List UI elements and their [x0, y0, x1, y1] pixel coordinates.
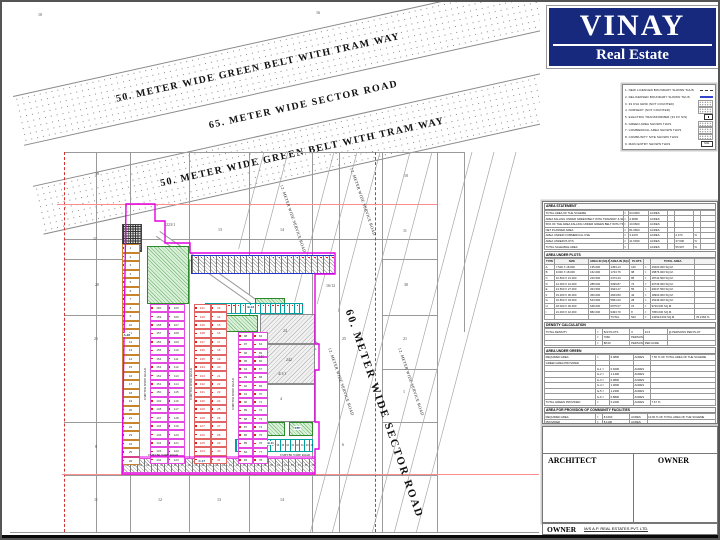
plot-cell: 137 [194, 338, 211, 346]
plot-cell: 154 [150, 355, 168, 363]
title-block-vertical-divider [633, 453, 634, 524]
strip-plot-cell: 44 [226, 459, 233, 472]
table-cell: TOTAL SALEABLE AREA [545, 244, 624, 250]
plot-cell: 97 [238, 340, 253, 348]
table-cell [647, 420, 715, 424]
plot-cell: 8 [122, 304, 140, 313]
inner-road-label: 9 METER WIDE ROAD [231, 374, 235, 414]
legend-symbol-blue-icon [700, 96, 713, 98]
strip-plot-cell [299, 304, 304, 313]
plot-cell: 75 [253, 431, 268, 439]
legend-item: 8. COMMUNITY SITE SHOWN THUS [625, 134, 713, 141]
table-cell: PER ACRE [644, 340, 668, 346]
table-cell: 8.1100 [603, 420, 630, 424]
plot-cell: 155 [150, 346, 168, 354]
service-road-line [239, 152, 264, 249]
block-label: A-28 [123, 333, 131, 337]
plot-cell: 23 [122, 431, 140, 440]
legend-box: 1. NEW LICENCED BOUNDARY SHOWN THUS2. DE… [622, 84, 716, 150]
data-table: TYPESIZEAREA IN (SQ.M.)AREA IN (SQ.FT.)P… [544, 258, 716, 321]
plot-cell: 5 [122, 278, 140, 287]
inner-road-label: 9 METER WIDE ROAD [143, 364, 147, 404]
plot-cell: 3 [122, 261, 140, 270]
table-cell: 6.2200 [609, 399, 633, 405]
table-cell: ACRES [633, 399, 650, 405]
table-row: TOTAL GREEN PROVIDED=6.2200ACRES7.67 % [545, 399, 716, 405]
sheet-bottom-bar [2, 535, 720, 539]
plot-cell: 158 [150, 321, 168, 329]
plot-cell: 20 [122, 406, 140, 415]
table-cell: 523 [630, 314, 644, 320]
plot-cell: 117 [168, 405, 186, 413]
legend-item-label: 3. 33 KVA GRID (NOT COUNTED) [625, 102, 697, 106]
legend-item: 4. NURSERY (NOT COUNTED) [625, 107, 713, 114]
table-cell [589, 314, 610, 320]
khasra-number: 10 [38, 12, 42, 17]
plot-cell: 136 [194, 346, 211, 354]
legend-item: 5. ELECTRIC TRANSFORMER (33 KV S/S) [625, 114, 713, 121]
plot-cell: 125 [194, 439, 211, 447]
plot-cell: 29 [211, 439, 228, 447]
plot-cell: 124 [194, 447, 211, 455]
plot-strip-0 [191, 255, 334, 274]
table-row: TOTAL SALEABLE AREA=ACRES55.907% [545, 244, 716, 250]
plot-cell: 25 [211, 405, 228, 413]
table-title: DENSITY CALCULATION [544, 322, 716, 329]
table-cell: PROVIDED [545, 420, 596, 424]
table-cell: % [693, 244, 700, 250]
company-logo: VINAY Real Estate [547, 6, 718, 68]
plot-cell: 16 [122, 372, 140, 381]
plot-cell: 26 [211, 413, 228, 421]
plot-cell: 92 [238, 382, 253, 390]
strip-plot-cell: 50 [268, 459, 275, 472]
strip-plot-cell: 56 [309, 459, 316, 472]
plot-cell: 159 [150, 312, 168, 320]
table-title: AREA UNDER PLOTS [544, 251, 716, 258]
khasra-number: 4 [280, 396, 282, 401]
table-cell: = [596, 340, 603, 346]
table-cell: ACRES [649, 244, 668, 250]
plot-cell: 126 [194, 430, 211, 438]
plot-cell: 113 [168, 371, 186, 379]
table-cell [700, 244, 715, 250]
strip-plot-cell: 29 [309, 440, 314, 451]
plot-cell: 127 [194, 422, 211, 430]
plot-cell: 106 [168, 312, 186, 320]
plot-cell: 19 [211, 355, 228, 363]
plot-cell: 17 [122, 380, 140, 389]
table-row: TOTAL523=142524.000 SQ.M.35.2184 % [545, 314, 716, 320]
plot-cell: 160 [150, 304, 168, 312]
legend-symbol-dots-icon [698, 127, 713, 134]
plot-cell: 147 [150, 413, 168, 421]
khasra-number: 14 [280, 227, 284, 232]
plot-cell: 145 [150, 430, 168, 438]
khasra-number: 4/1/1 [278, 371, 286, 376]
plot-cell: 144 [150, 439, 168, 447]
legend-item: 2. DELICENSED BOUNDARY SHOWN THUS [625, 94, 713, 101]
plot-cell: 78 [253, 456, 268, 464]
block-label: STP [294, 426, 301, 430]
legend-item-label: 4. NURSERY (NOT COUNTED) [625, 108, 697, 112]
plot-cell: 18 [211, 346, 228, 354]
legend-item-label: 5. ELECTRIC TRANSFORMER (33 KV S/S) [625, 115, 703, 119]
plot-cell: 72 [253, 406, 268, 414]
legend-symbol-dots-icon [698, 100, 713, 107]
plot-cell: 141 [194, 304, 211, 312]
table-cell [628, 244, 649, 250]
plot-cell: 110 [168, 346, 186, 354]
khasra-number: 11 [93, 236, 97, 241]
plot-cell: 13 [122, 346, 140, 355]
plot-cell: 64 [253, 340, 268, 348]
table-cell: TOTAL GREEN PROVIDED [545, 399, 596, 405]
plot-cell: 153 [150, 363, 168, 371]
plot-cell: 23 [211, 388, 228, 396]
plot-cell: 152 [150, 371, 168, 379]
plot-cell: 68 [253, 373, 268, 381]
legend-symbol-me-icon: M.E. [701, 141, 713, 148]
owner-strip-label: OWNER [547, 525, 576, 534]
plot-cell: 84 [238, 448, 253, 456]
inner-road-label: 9 METER WIDE ROAD [148, 453, 178, 457]
service-road-line [372, 152, 472, 532]
plot-cell: 121 [168, 439, 186, 447]
table-cell: PERSONS [630, 340, 644, 346]
table-title: AREA STATEMENT [544, 203, 716, 210]
legend-item: 7. COMMERCIAL AREA SHOWN THUS [625, 127, 713, 134]
plot-cell: 118 [168, 413, 186, 421]
plot-cell: 156 [150, 338, 168, 346]
table-cell: AREA FALLING UNDER GREEN BELT WITH TRAMW… [545, 216, 624, 222]
undetermined-parcel [260, 314, 315, 344]
strip-plot-cell: 55 [302, 459, 309, 472]
plot-cell: 31 [211, 456, 228, 464]
plot-cell: 2 [122, 253, 140, 262]
khasra-number: 12 [158, 497, 162, 502]
legend-item: 3. 33 KVA GRID (NOT COUNTED) [625, 100, 713, 107]
plot-cell: 95 [238, 357, 253, 365]
khasra-number: 24 [283, 328, 287, 333]
legend-item: 6. GREEN AREA SHOWN THUS [625, 120, 713, 127]
plot-cell: 128 [194, 413, 211, 421]
plot-cell: 4 [122, 270, 140, 279]
legend-item-label: 2. DELICENSED BOUNDARY SHOWN THUS [625, 95, 699, 99]
plot-cell: 6 [122, 287, 140, 296]
plot-cell: 15 [211, 321, 228, 329]
plot-cell: 21 [211, 371, 228, 379]
plot-cell: 14 [122, 355, 140, 364]
area-statement-tables: AREA STATEMENTTOTAL AREA OF THE SCHEME=9… [542, 201, 718, 424]
table-cell: 7.67 % [651, 399, 716, 405]
table-title: AREA UNDER GREEN [544, 347, 716, 354]
architect-label: ARCHITECT [548, 456, 596, 465]
table-cell: = [596, 420, 603, 424]
legend-item: 1. NEW LICENCED BOUNDARY SHOWN THUS [625, 87, 713, 94]
plot-cell: 109 [168, 338, 186, 346]
green-area [289, 422, 313, 436]
legend-symbol-dots-icon [698, 107, 713, 114]
table-cell: TOTAL [609, 314, 630, 320]
plot-cell: 9 [122, 312, 140, 321]
strip-plot-cell: 54 [295, 459, 302, 472]
table-cell: 88.00 [603, 340, 630, 346]
table-cell: 7.50 % OF TOTAL AREA OF THE SCHEME [651, 355, 716, 361]
plot-cell: 74 [253, 423, 268, 431]
block-label: C-17 [198, 459, 206, 463]
legend-item: 9. MAIN ENTRY SHOWN THUSM.E. [625, 141, 713, 148]
legend-item-label: 9. MAIN ENTRY SHOWN THUS [625, 142, 700, 146]
plot-cell: 96 [238, 349, 253, 357]
data-table: TOTAL DENSITY=523 PLOTSX13.5@ PERSONS PE… [544, 328, 716, 346]
plot-cell: 151 [150, 380, 168, 388]
table-row: PROVIDED=8.1100ACRES [545, 420, 716, 424]
plot-cell: 138 [194, 329, 211, 337]
plot-cell: 85 [238, 439, 253, 447]
table-cell: = [596, 399, 610, 405]
plot-cell: 77 [253, 448, 268, 456]
table-cell [668, 340, 716, 346]
plot-cell: 140 [194, 312, 211, 320]
plot-cell: 91 [238, 390, 253, 398]
plot-cell: 139 [194, 321, 211, 329]
legend-item-label: 1. NEW LICENCED BOUNDARY SHOWN THUS [625, 88, 699, 92]
plot-cell: 7 [122, 295, 140, 304]
plot-cell: 105 [168, 304, 186, 312]
khasra-number: 242 [286, 357, 292, 362]
plot-cell: 20 [211, 363, 228, 371]
plot-cell: 19 [122, 397, 140, 406]
legend-item-label: 6. GREEN AREA SHOWN THUS [625, 122, 697, 126]
khasra-number: 11 [94, 497, 98, 502]
plot-cell: 86 [238, 431, 253, 439]
khasra-number: 241 [258, 354, 264, 359]
plot-cell: 28 [211, 430, 228, 438]
plot-cell: 30 [211, 447, 228, 455]
block-label: B-13 [247, 305, 255, 309]
legend-symbol-dots-icon [698, 121, 713, 128]
table-cell [555, 314, 589, 320]
plot-cell: 18 [122, 389, 140, 398]
khasra-number: 13 [218, 227, 222, 232]
khasra-number: 20 [95, 282, 99, 287]
khasra-number: 1 [403, 389, 405, 394]
plot-cell: 25 [122, 448, 140, 457]
plot-cell: 21 [122, 414, 140, 423]
strip-plot-cell: 53 [288, 459, 295, 472]
plot-cell: 27 [211, 422, 228, 430]
khasra-number: 13 [217, 497, 221, 502]
plot-cell: 73 [253, 415, 268, 423]
khasra-number: 18 [95, 171, 99, 176]
plot-cell: 24 [122, 440, 140, 449]
logo-subtitle: Real Estate [549, 46, 716, 65]
plot-cell: 69 [253, 382, 268, 390]
plot-cell: 22 [122, 423, 140, 432]
table-cell: 35.2184 % [695, 314, 716, 320]
table-cell [668, 244, 675, 250]
plot-cell: 157 [150, 329, 168, 337]
title-block-divider [543, 453, 717, 454]
khasra-number: 10 [404, 173, 408, 178]
table-cell: 50% OF THE AREA FALLING UNDER GREEN BELT… [545, 221, 624, 227]
plot-cell: 83 [238, 456, 253, 464]
plot-cell: 115 [168, 388, 186, 396]
strip-plot-cell: 38 [185, 459, 192, 472]
plot-cell: 10 [122, 321, 140, 330]
plot-cell: 24 [211, 397, 228, 405]
plot-cell: 89 [238, 406, 253, 414]
plot-cell: 16 [211, 329, 228, 337]
data-table: REQUIRED AREA=6.0800ACRES7.50 % OF TOTAL… [544, 354, 716, 405]
plot-cell: 149 [150, 397, 168, 405]
service-road-line [332, 152, 432, 532]
plot-cell: 107 [168, 321, 186, 329]
table-cell [545, 340, 596, 346]
plot-cell: 114 [168, 380, 186, 388]
khasra-number: 14 [280, 497, 284, 502]
plot-cell: 131 [194, 388, 211, 396]
table-cell: PERSONS [630, 335, 644, 341]
plot-cell: 148 [150, 405, 168, 413]
table-cell: 142524.000 SQ.M. [650, 314, 694, 320]
plot-cell: 93 [238, 373, 253, 381]
table-cell [545, 314, 555, 320]
plot-cell: 150 [150, 388, 168, 396]
plot-cell: 119 [168, 422, 186, 430]
table-header-cell: TYPE [545, 258, 555, 264]
legend-symbol-dots-icon [698, 134, 713, 141]
khasra-number: 21 [403, 336, 407, 341]
green-area [147, 246, 189, 304]
block-label: B-11 [267, 441, 274, 445]
service-road-line [261, 152, 288, 254]
owner-label: OWNER [658, 456, 689, 465]
service-road-line [416, 152, 516, 532]
legend-item-label: 8. COMMUNITY SITE SHOWN THUS [625, 135, 697, 139]
table-row: =88.00PERSONSPER ACRE [545, 340, 716, 346]
owner-strip: OWNER M/S A.P. REAL ESTATES PVT. LTD. [542, 523, 718, 535]
drawing-sheet: 50. METER WIDE GREEN BELT WITH TRAM WAY6… [0, 0, 720, 540]
plot-cell: 67 [253, 365, 268, 373]
plot-cell: 12 [122, 338, 140, 347]
khasra-number: 8 [95, 444, 97, 449]
khasra-number: 16/12 [326, 283, 335, 288]
plot-cell: 120 [168, 430, 186, 438]
inner-road-label: 9 METER WIDE ROAD [189, 364, 193, 404]
khasra-number: 6 [342, 442, 344, 447]
plot-cell: 88 [238, 415, 253, 423]
plot-cell: 135 [194, 355, 211, 363]
khasra-number: 11 [403, 228, 407, 233]
plan-area: 50. METER WIDE GREEN BELT WITH TRAM WAY6… [2, 2, 540, 540]
khasra-number: 1223/1 [164, 222, 175, 227]
plot-cell: 90 [238, 398, 253, 406]
plot-cell: 146 [150, 422, 168, 430]
data-table: TOTAL AREA OF THE SCHEME=94.0000ACRESARE… [544, 210, 716, 250]
table-cell: = [644, 314, 651, 320]
inner-road-label: 9 METER WIDE ROAD [280, 453, 310, 457]
plot-cell: 14 [211, 312, 228, 320]
logo-title: VINAY [549, 8, 716, 44]
plot-cell: 132 [194, 380, 211, 388]
plot-cell: 17 [211, 338, 228, 346]
khasra-number: 21 [94, 336, 98, 341]
khasra-number: 30 [404, 282, 408, 287]
plot-cell: 98 [238, 332, 253, 340]
data-table: REQUIRED AREA=8.1060ACRES10.00 % OF TOTA… [544, 413, 716, 424]
legend-item-label: 7. COMMERCIAL AREA SHOWN THUS [625, 128, 697, 132]
plot-cell: 111 [168, 355, 186, 363]
table-cell: ACRES [630, 420, 647, 424]
strip-plot-cell: 51 [275, 459, 282, 472]
service-road-line [295, 152, 334, 302]
plot-cell: 76 [253, 439, 268, 447]
plot-cell: 87 [238, 423, 253, 431]
plot-cell: 26 [122, 457, 140, 466]
plot-cell: 130 [194, 397, 211, 405]
plot-cell: 15 [122, 363, 140, 372]
table-title: AREA FOR PROVISION OF COMMUNITY FACILITI… [544, 407, 716, 414]
khasra-number: 16 [316, 10, 320, 15]
plot-cell: 1 [122, 244, 140, 253]
khasra-number: 25 [342, 336, 346, 341]
plot-cell: 112 [168, 363, 186, 371]
plot-cell: 71 [253, 398, 268, 406]
plot-cell: 116 [168, 397, 186, 405]
plot-cell: 63 [253, 332, 268, 340]
plot-cell: 134 [194, 363, 211, 371]
legend-symbol-dashdot-icon [700, 90, 713, 91]
plot-cell: 70 [253, 390, 268, 398]
table-header-cell: AREA IN (SQ.FT.) [609, 258, 630, 264]
plot-cell: 129 [194, 405, 211, 413]
plot-cell: 94 [238, 365, 253, 373]
plot-cell: 22 [211, 380, 228, 388]
owner-name: M/S A.P. REAL ESTATES PVT. LTD. [584, 526, 648, 533]
legend-symbol-box-icon [704, 114, 713, 121]
plot-cell: 108 [168, 329, 186, 337]
table-cell: 55.907 [674, 244, 693, 250]
plot-cell: 13 [211, 304, 228, 312]
title-block: ARCHITECT OWNER [542, 426, 718, 523]
plot-cell: 133 [194, 371, 211, 379]
strip-plot-cell: 52 [282, 459, 289, 472]
strip-plot-cell [329, 256, 335, 273]
table-header-cell: AREA IN (SQ.M.) [589, 258, 610, 264]
